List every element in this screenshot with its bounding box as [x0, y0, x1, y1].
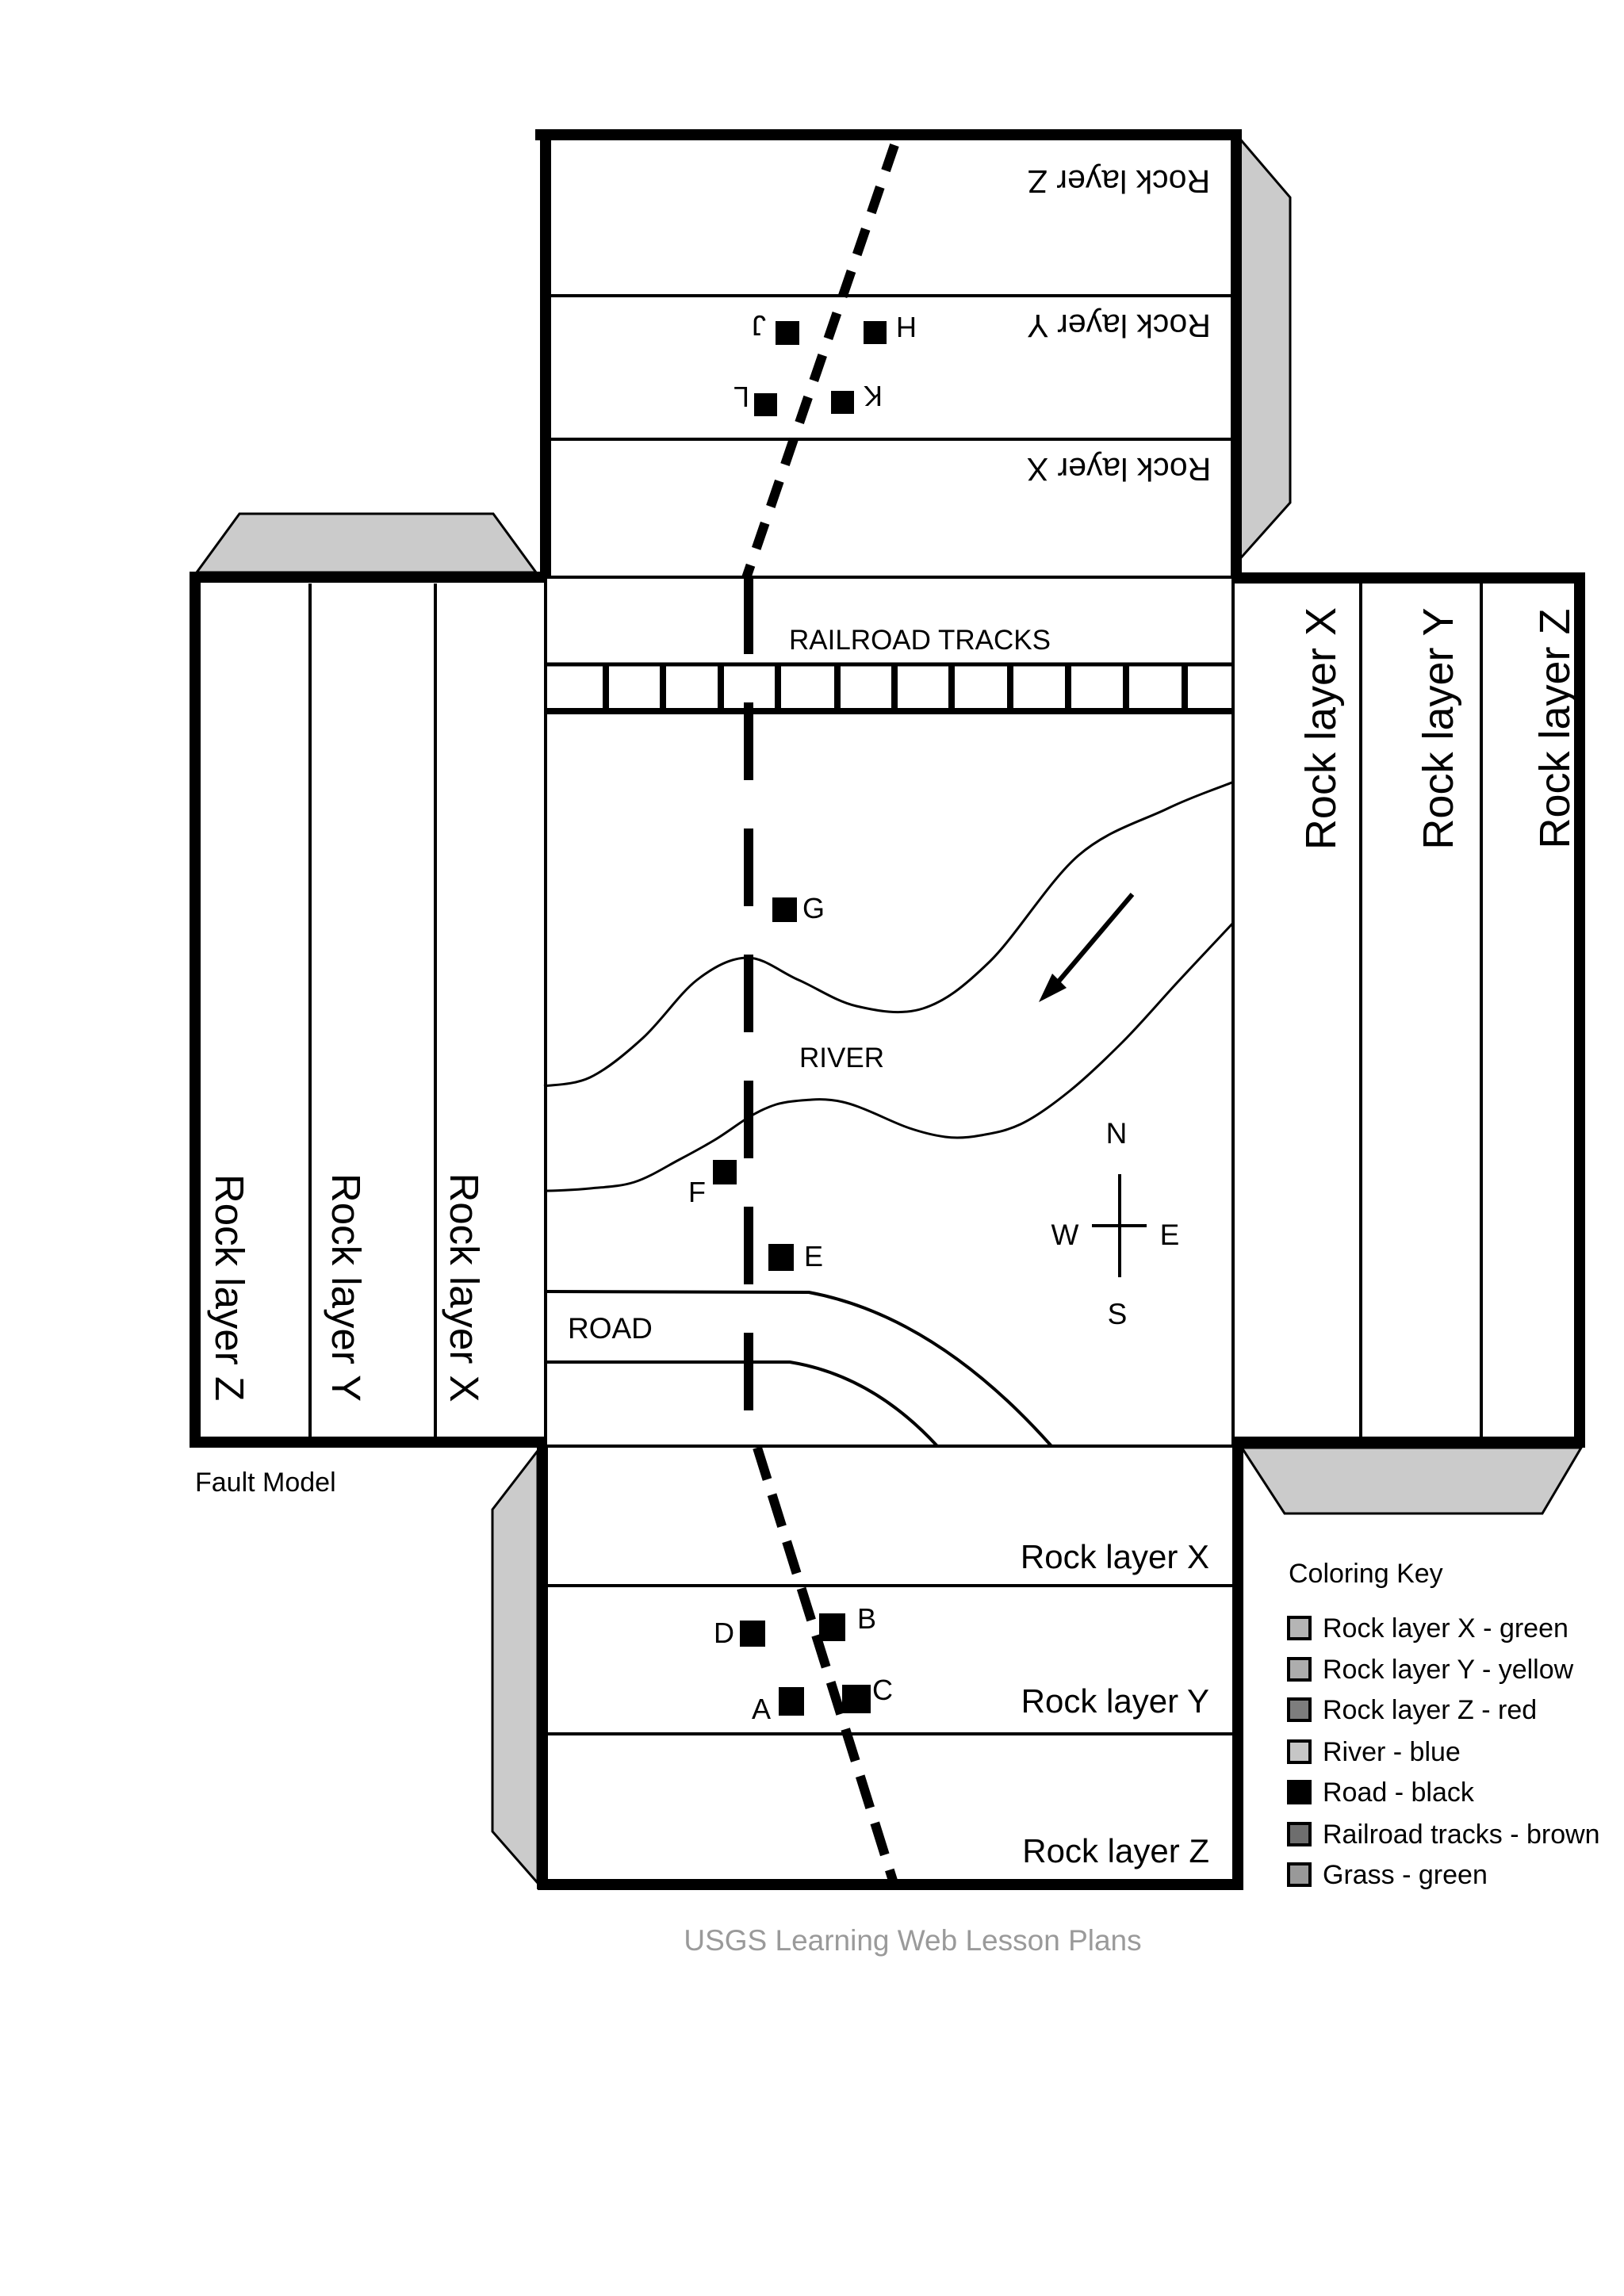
- svg-text:S: S: [1108, 1298, 1128, 1330]
- svg-text:RAILROAD TRACKS: RAILROAD TRACKS: [789, 625, 1051, 656]
- svg-text:Rock layer Z - red: Rock layer Z - red: [1323, 1695, 1537, 1725]
- svg-text:W: W: [1051, 1219, 1079, 1251]
- svg-text:J: J: [752, 309, 766, 342]
- svg-text:Rock layer X: Rock layer X: [442, 1173, 487, 1402]
- svg-text:Grass - green: Grass - green: [1323, 1860, 1488, 1890]
- svg-text:E: E: [804, 1240, 823, 1272]
- svg-text:Rock layer X - green: Rock layer X - green: [1323, 1613, 1568, 1644]
- svg-text:G: G: [802, 892, 825, 924]
- svg-text:Rock layer Z: Rock layer Z: [1028, 163, 1210, 200]
- svg-text:Rock layer Y: Rock layer Y: [1027, 308, 1211, 344]
- svg-text:Rock layer Z: Rock layer Z: [1022, 1832, 1209, 1869]
- svg-text:Rock layer Z: Rock layer Z: [207, 1174, 252, 1401]
- svg-text:Rock layer X: Rock layer X: [1297, 607, 1345, 850]
- svg-text:H: H: [896, 311, 917, 343]
- svg-text:Rock layer Z: Rock layer Z: [1531, 608, 1579, 848]
- svg-text:Fault Model: Fault Model: [195, 1468, 336, 1498]
- svg-text:D: D: [714, 1617, 734, 1649]
- svg-text:RIVER: RIVER: [799, 1043, 884, 1073]
- svg-text:K: K: [864, 380, 883, 412]
- svg-text:Road - black: Road - black: [1323, 1777, 1475, 1808]
- svg-text:River - blue: River - blue: [1323, 1737, 1461, 1767]
- svg-text:F: F: [688, 1176, 706, 1208]
- svg-text:Rock layer X: Rock layer X: [1021, 1538, 1209, 1575]
- svg-text:Rock layer Y: Rock layer Y: [1415, 607, 1462, 849]
- svg-text:USGS Learning Web Lesson Plans: USGS Learning Web Lesson Plans: [684, 1924, 1141, 1957]
- svg-text:Railroad tracks - brown: Railroad tracks - brown: [1323, 1820, 1600, 1850]
- svg-text:A: A: [752, 1693, 771, 1725]
- svg-text:L: L: [733, 381, 749, 413]
- svg-text:Rock layer Y: Rock layer Y: [1021, 1682, 1209, 1720]
- svg-text:B: B: [857, 1602, 876, 1635]
- svg-text:ROAD: ROAD: [568, 1312, 653, 1345]
- svg-text:Rock layer X: Rock layer X: [1027, 451, 1211, 488]
- svg-text:Rock layer Y: Rock layer Y: [324, 1173, 369, 1402]
- svg-text:Rock layer Y - yellow: Rock layer Y - yellow: [1323, 1655, 1574, 1685]
- svg-text:Coloring Key: Coloring Key: [1289, 1559, 1443, 1589]
- svg-text:E: E: [1160, 1219, 1180, 1251]
- svg-text:N: N: [1106, 1117, 1128, 1150]
- svg-text:C: C: [872, 1674, 893, 1706]
